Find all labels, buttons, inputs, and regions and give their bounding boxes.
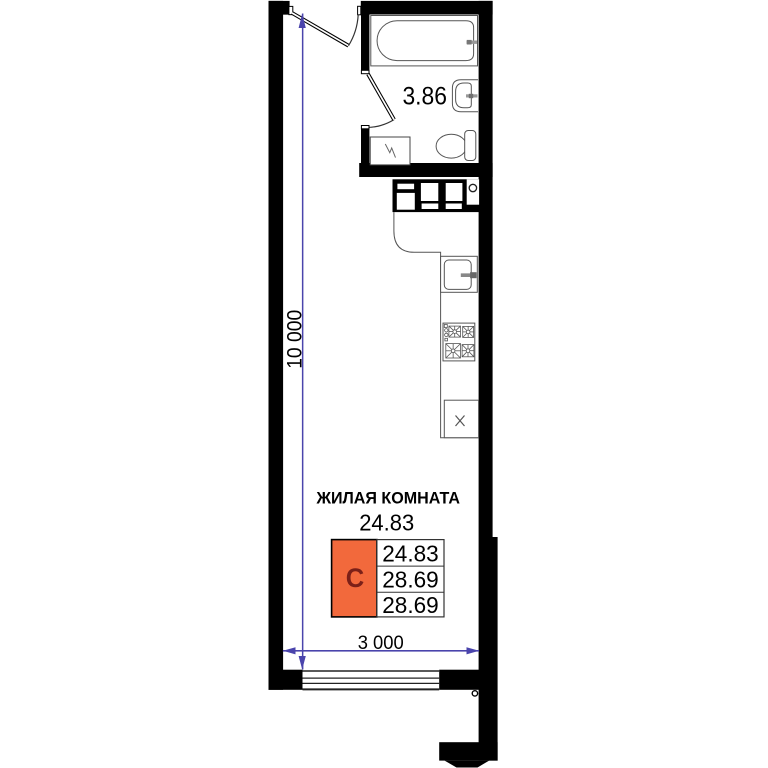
svg-text:3 000: 3 000 [358, 632, 404, 654]
svg-text:28.69: 28.69 [382, 567, 439, 593]
svg-text:С: С [346, 563, 365, 593]
svg-text:ЖИЛАЯ КОМНАТА: ЖИЛАЯ КОМНАТА [315, 489, 460, 507]
svg-text:28.69: 28.69 [382, 592, 439, 618]
svg-text:3.86: 3.86 [402, 84, 447, 111]
svg-text:10 000: 10 000 [281, 310, 306, 369]
svg-text:24.83: 24.83 [359, 509, 414, 535]
svg-text:24.83: 24.83 [382, 540, 439, 566]
